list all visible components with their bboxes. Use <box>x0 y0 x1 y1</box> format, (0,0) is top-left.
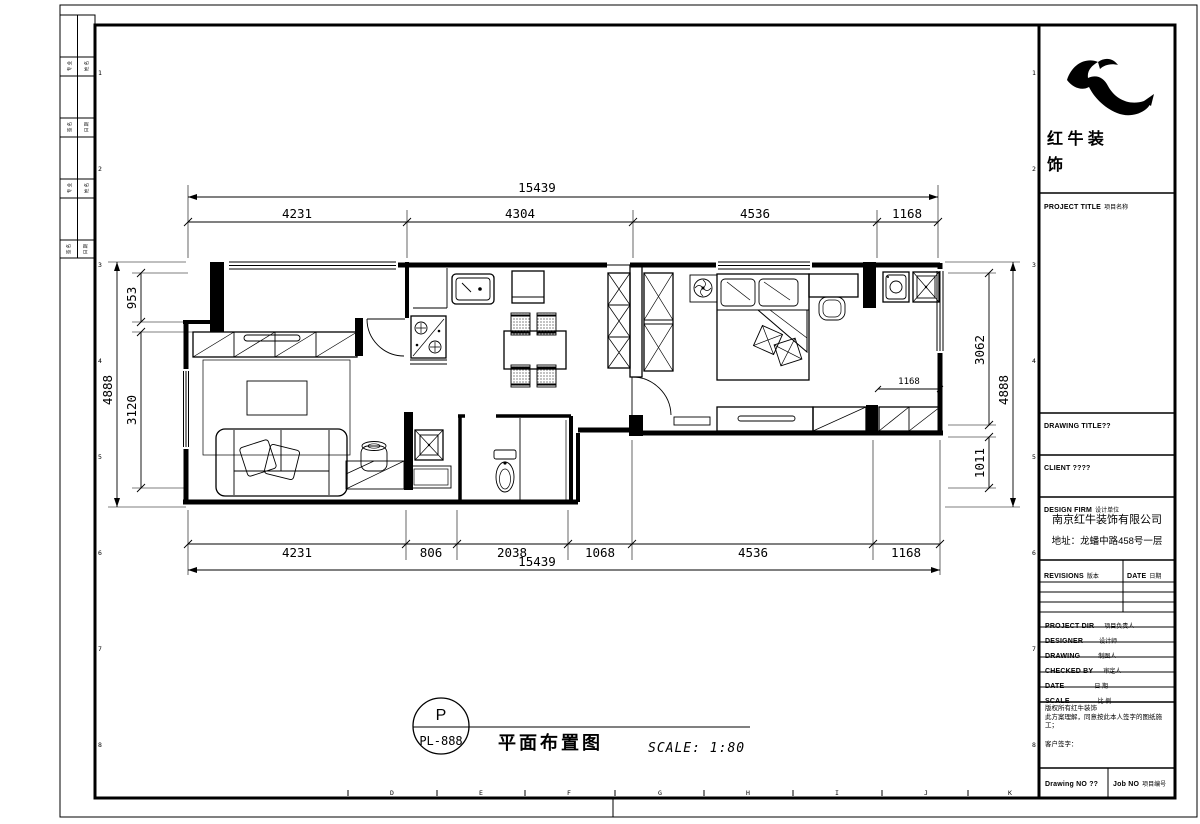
dim-label: 953 <box>124 287 139 310</box>
svg-text:1: 1 <box>1032 69 1036 77</box>
dim-label: 1168 <box>891 545 921 560</box>
design-firm-name: 南京红牛装饰有限公司 <box>1039 511 1175 527</box>
dim-label: 4304 <box>505 206 535 221</box>
dim-label: 4536 <box>738 545 768 560</box>
section-project-title: PROJECT TITLE项目名称 <box>1044 196 1128 214</box>
bedroom <box>644 273 866 431</box>
signoff-cell: 专 业 <box>66 182 73 193</box>
brand-name-line2: 饰 <box>1047 151 1169 175</box>
balcony-storage <box>879 407 940 431</box>
grid-letter: F <box>567 789 571 797</box>
dim-label: 1168 <box>892 206 922 221</box>
double-bed <box>717 274 809 380</box>
living-room <box>193 332 404 496</box>
dining-chair <box>537 313 556 335</box>
svg-text:4: 4 <box>98 357 102 365</box>
washing-machine <box>883 272 909 302</box>
svg-text:6: 6 <box>1032 549 1036 557</box>
bedroom-wardrobe <box>644 273 673 371</box>
tv-cabinet <box>193 332 357 357</box>
balcony <box>879 272 940 431</box>
side-stool <box>361 442 387 472</box>
wash-basin <box>411 430 451 488</box>
shoe-cabinet <box>346 461 404 489</box>
dim-label: 15439 <box>518 180 556 195</box>
gas-stove <box>411 316 446 358</box>
project-title-label: PROJECT TITLE <box>1044 204 1101 211</box>
dim-interior: 1168 <box>875 377 943 392</box>
dining-chair <box>537 365 556 387</box>
copyright-notes: 版权所有红牛装饰 此方案理解，同意按此本人签字的图纸施工； 客户签字： <box>1045 705 1171 749</box>
grid-numbers-left: 1 2 3 4 5 6 7 8 <box>98 69 102 749</box>
svg-text:1: 1 <box>98 69 102 77</box>
dining-set <box>504 313 566 387</box>
dim-label: 4888 <box>996 375 1011 405</box>
drawing-title: 平面布置图 <box>498 732 603 753</box>
svg-text:3: 3 <box>98 261 102 269</box>
signoff-cell: 签 名 <box>65 244 72 254</box>
rug <box>203 360 350 455</box>
dining-chair <box>511 365 530 387</box>
drawing-scale: SCALE: 1:80 <box>648 741 745 756</box>
window-balcony-right <box>935 269 945 353</box>
dim-top: 15439 4231 4304 4536 1168 <box>184 180 942 226</box>
folded-blanket <box>758 310 807 352</box>
svg-text:2: 2 <box>1032 165 1036 173</box>
mop-basin <box>913 272 939 302</box>
signoff-strip: 专 业 姓 名 签 名 日 期 专 业 姓 名 签 名 日 期 <box>60 15 95 258</box>
blueprint-page: 专 业 姓 名 签 名 日 期 专 业 姓 名 签 名 日 期 D E F G … <box>0 0 1200 824</box>
signoff-cell: 签 名 <box>66 122 73 132</box>
signoff-cell: 日 期 <box>84 121 90 132</box>
svg-text:3: 3 <box>1032 261 1036 269</box>
grid-letter: D <box>390 789 394 797</box>
window-bedroom-top <box>716 260 812 270</box>
svg-text:8: 8 <box>98 741 102 749</box>
note-line1: 版权所有红牛装饰 <box>1045 705 1171 714</box>
dim-label: 1168 <box>898 377 920 387</box>
design-firm-address: 地址：龙蟠中路458号一层 <box>1039 533 1175 547</box>
bedroom-low-cabinet <box>717 407 866 431</box>
footer-job-no: Job NO项目编号 <box>1113 773 1166 791</box>
windows <box>182 260 945 449</box>
svg-text:2: 2 <box>98 165 102 173</box>
dim-label: 3062 <box>972 335 987 365</box>
svg-text:6: 6 <box>98 549 102 557</box>
grid-letter: K <box>1008 789 1012 797</box>
svg-text:7: 7 <box>1032 645 1036 653</box>
throw-pillow <box>264 444 300 480</box>
grid-letter: G <box>658 789 662 797</box>
kitchen-door <box>367 319 405 356</box>
date-header: DATE日期 <box>1127 565 1161 583</box>
desk <box>809 274 858 320</box>
svg-text:7: 7 <box>98 645 102 653</box>
svg-text:5: 5 <box>98 453 102 461</box>
dim-label: 4231 <box>282 545 312 560</box>
dim-label: 15439 <box>518 554 556 569</box>
dining-chair <box>511 313 530 335</box>
dim-left: 4888 953 3120 <box>100 262 145 507</box>
svg-text:8: 8 <box>1032 741 1036 749</box>
window-living-top <box>227 260 398 270</box>
svg-text:5: 5 <box>1032 453 1036 461</box>
pillow <box>759 279 798 306</box>
grid-letter: J <box>924 789 928 797</box>
dim-right: 4888 3062 1011 <box>972 262 1016 507</box>
dim-label: 1068 <box>585 545 615 560</box>
toilet <box>494 450 516 492</box>
floor-plan-drawing: 专 业 姓 名 签 名 日 期 专 业 姓 名 签 名 日 期 D E F G … <box>0 0 1200 824</box>
grid-letter: H <box>746 789 750 797</box>
dim-label: 806 <box>420 545 443 560</box>
bathroom <box>411 418 566 500</box>
pillow <box>721 279 755 306</box>
signoff-cell: 姓 名 <box>83 183 90 193</box>
hallway-cabinet <box>608 273 630 368</box>
grid-numbers-right: 1 2 3 4 5 6 7 8 <box>1032 69 1036 749</box>
stamp-letter: P <box>436 707 447 724</box>
sofa <box>216 429 347 496</box>
kitchen-sink <box>452 274 494 304</box>
window-living-left <box>182 369 191 449</box>
signoff-cell: 日 期 <box>83 243 89 254</box>
dim-label: 4231 <box>282 206 312 221</box>
note-line2: 此方案理解，同意按此本人签字的图纸施工； <box>1045 714 1171 731</box>
dining-table <box>504 331 566 369</box>
kitchen <box>410 268 630 387</box>
dim-label: 3120 <box>124 395 139 425</box>
dimensions: 15439 4231 4304 4536 1168 4231 806 2038 … <box>100 180 1020 575</box>
svg-text:4: 4 <box>1032 357 1036 365</box>
walls <box>183 262 943 504</box>
ceiling-fan-icon <box>690 275 717 302</box>
bedroom-door <box>632 377 710 425</box>
note-line3: 客户签字： <box>1045 741 1171 750</box>
signoff-cell: 姓 名 <box>83 61 90 71</box>
grid-letter: E <box>479 789 483 797</box>
footer-drawing-no: Drawing NO ?? <box>1045 773 1098 791</box>
coffee-table <box>247 381 307 415</box>
revisions-header: REVISIONS版本 <box>1044 565 1099 583</box>
grid-letter: I <box>835 789 839 797</box>
sheet-frame <box>60 5 1197 817</box>
section-client: CLIENT ???? <box>1044 457 1091 475</box>
project-title-label-cn: 项目名称 <box>1104 205 1128 211</box>
brand-name-line1: 红 牛 装 <box>1047 125 1169 149</box>
fridge <box>512 271 544 303</box>
section-drawing-title: DRAWING TITLE?? <box>1044 415 1111 433</box>
dim-label: 1011 <box>972 448 987 478</box>
title-block: 红 牛 装 饰 PROJECT TITLE项目名称 DRAWING TITLE?… <box>1039 25 1175 798</box>
signoff-cell: 专 业 <box>66 60 73 71</box>
stamp-number: PL-888 <box>419 734 462 748</box>
dim-label: 4536 <box>740 206 770 221</box>
tv <box>244 335 300 341</box>
dim-bottom: 4231 806 2038 1068 4536 1168 15439 <box>184 540 944 573</box>
drawing-stamp: P PL-888 平面布置图 SCALE: 1:80 <box>413 698 750 756</box>
dim-label: 4888 <box>100 375 115 405</box>
